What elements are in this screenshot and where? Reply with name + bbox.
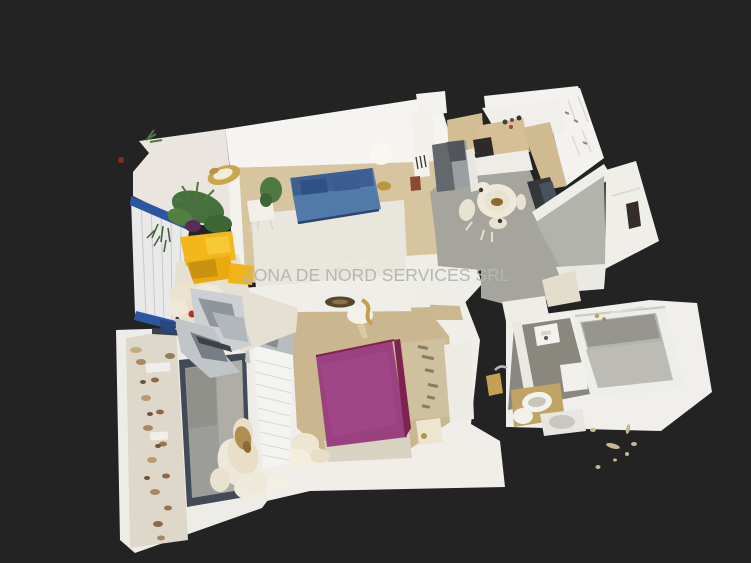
svg-text:ZONA DE NORD SERVICES SRL: ZONA DE NORD SERVICES SRL xyxy=(243,265,510,285)
